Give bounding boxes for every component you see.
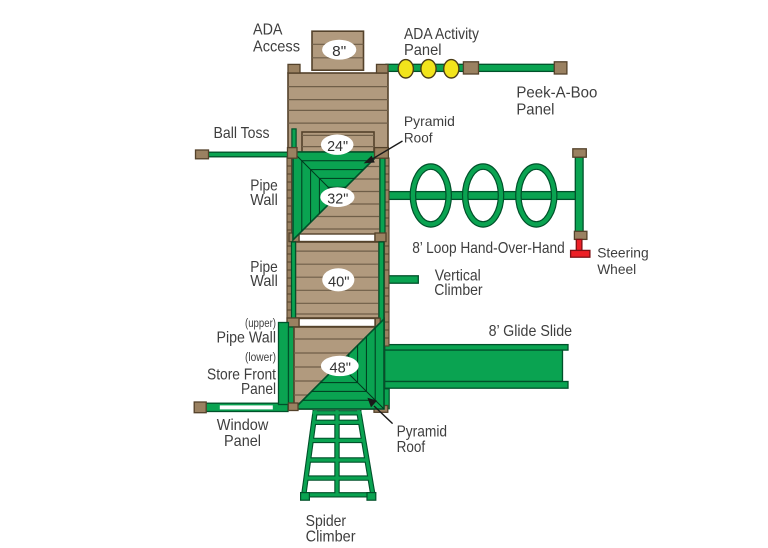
svg-text:ADA: ADA [253, 21, 283, 38]
svg-text:Pyramid: Pyramid [404, 113, 455, 129]
svg-text:Access: Access [253, 39, 300, 56]
svg-text:Pyramid: Pyramid [397, 423, 448, 440]
svg-text:Climber: Climber [306, 528, 357, 545]
svg-text:Wall: Wall [250, 192, 277, 209]
svg-text:ADA Activity: ADA Activity [404, 26, 479, 43]
svg-text:8": 8" [332, 43, 346, 60]
svg-text:8’ Glide Slide: 8’ Glide Slide [489, 323, 573, 340]
svg-text:32": 32" [327, 191, 348, 208]
svg-text:Ball Toss: Ball Toss [214, 125, 270, 142]
svg-text:Wheel: Wheel [597, 261, 636, 277]
svg-text:8’ Loop Hand-Over-Hand: 8’ Loop Hand-Over-Hand [412, 240, 565, 257]
svg-text:Climber: Climber [434, 282, 483, 299]
svg-text:Peek-A-Boo: Peek-A-Boo [516, 85, 597, 102]
svg-text:Steering: Steering [597, 245, 649, 261]
svg-text:48": 48" [329, 359, 351, 376]
svg-text:Wall: Wall [250, 273, 277, 290]
svg-text:Roof: Roof [397, 439, 426, 456]
svg-text:40": 40" [328, 273, 350, 290]
svg-text:Pipe Wall: Pipe Wall [217, 330, 277, 347]
svg-text:Panel: Panel [404, 42, 442, 59]
svg-text:(upper): (upper) [245, 318, 276, 330]
svg-text:Window: Window [217, 417, 269, 434]
svg-text:(lower): (lower) [245, 352, 276, 364]
svg-text:Panel: Panel [241, 381, 276, 398]
svg-text:Panel: Panel [516, 102, 554, 119]
svg-text:24": 24" [327, 138, 348, 155]
svg-text:Panel: Panel [224, 433, 261, 450]
svg-text:Roof: Roof [404, 129, 433, 145]
svg-text:Spider: Spider [306, 513, 347, 530]
